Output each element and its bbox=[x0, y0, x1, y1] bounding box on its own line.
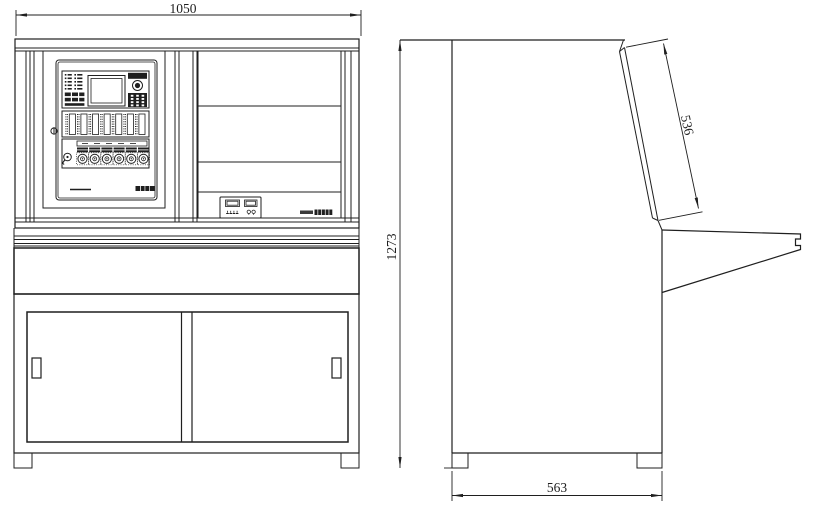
loop-module bbox=[112, 114, 121, 135]
control-knob-row bbox=[62, 139, 150, 168]
control-knob bbox=[101, 148, 113, 165]
control-knob bbox=[113, 148, 125, 165]
loop-module bbox=[89, 114, 99, 135]
control-knob bbox=[125, 148, 137, 165]
side-view: 1273 536 563 bbox=[384, 39, 801, 501]
dim-front-width-label: 1050 bbox=[170, 1, 197, 16]
keypad-icon bbox=[128, 93, 147, 107]
dim-front-width: 1050 bbox=[16, 1, 361, 36]
dim-overall-height: 1273 bbox=[384, 40, 457, 468]
cabinet-foot bbox=[452, 453, 468, 468]
tilt-panel bbox=[620, 40, 663, 230]
control-knob bbox=[89, 148, 101, 165]
technical-drawing-canvas: 1050 bbox=[0, 0, 814, 512]
cabinet-foot bbox=[14, 453, 32, 468]
panel-top-block bbox=[62, 71, 149, 108]
right-frame-lines bbox=[345, 51, 351, 222]
power-panel bbox=[220, 197, 261, 218]
two-view-drawing: 1050 bbox=[0, 0, 814, 512]
loop-module bbox=[136, 114, 146, 135]
brand-logo-mark bbox=[136, 186, 155, 191]
drawer-front bbox=[14, 248, 359, 294]
equipment-bay bbox=[198, 51, 341, 218]
sliding-door-frame bbox=[27, 312, 348, 442]
brand-header bbox=[128, 73, 147, 79]
cabinet-foot bbox=[341, 453, 359, 468]
indicator-led-grid bbox=[65, 74, 85, 106]
center-post-lines bbox=[175, 51, 197, 222]
power-buttons bbox=[226, 210, 255, 215]
key-switch-icon bbox=[62, 153, 71, 164]
dim-depth: 563 bbox=[452, 471, 662, 501]
desk-ledge bbox=[662, 230, 801, 293]
dim-overall-height-label: 1273 bbox=[384, 233, 399, 260]
label-strip bbox=[77, 141, 147, 146]
dim-tilt-panel: 536 bbox=[626, 39, 703, 220]
model-label-smudge bbox=[300, 210, 332, 216]
loop-module bbox=[66, 114, 76, 135]
left-frame-lines bbox=[26, 51, 34, 222]
cabinet-foot bbox=[637, 453, 662, 468]
door-handle-right-icon bbox=[332, 358, 341, 378]
front-view: 1050 bbox=[14, 1, 361, 468]
buzzer-icon bbox=[133, 81, 143, 91]
side-profile bbox=[400, 40, 801, 468]
control-knob bbox=[77, 148, 89, 165]
panel-keypad-column bbox=[128, 73, 147, 107]
loop-module bbox=[78, 114, 88, 135]
control-knob bbox=[138, 148, 150, 165]
control-panel bbox=[56, 60, 157, 200]
loop-module-row bbox=[62, 111, 149, 137]
dim-depth-label: 563 bbox=[547, 480, 568, 495]
door-handle-left-icon bbox=[32, 358, 41, 378]
loop-module bbox=[124, 114, 134, 135]
storage-cabinet bbox=[14, 294, 359, 468]
worktop-band bbox=[14, 228, 359, 248]
loop-module bbox=[101, 114, 111, 135]
lcd-screen bbox=[88, 76, 125, 107]
dim-tilt-panel-label: 536 bbox=[678, 114, 697, 137]
equipment-door bbox=[43, 51, 165, 208]
power-display bbox=[245, 200, 258, 207]
power-display bbox=[226, 200, 240, 207]
